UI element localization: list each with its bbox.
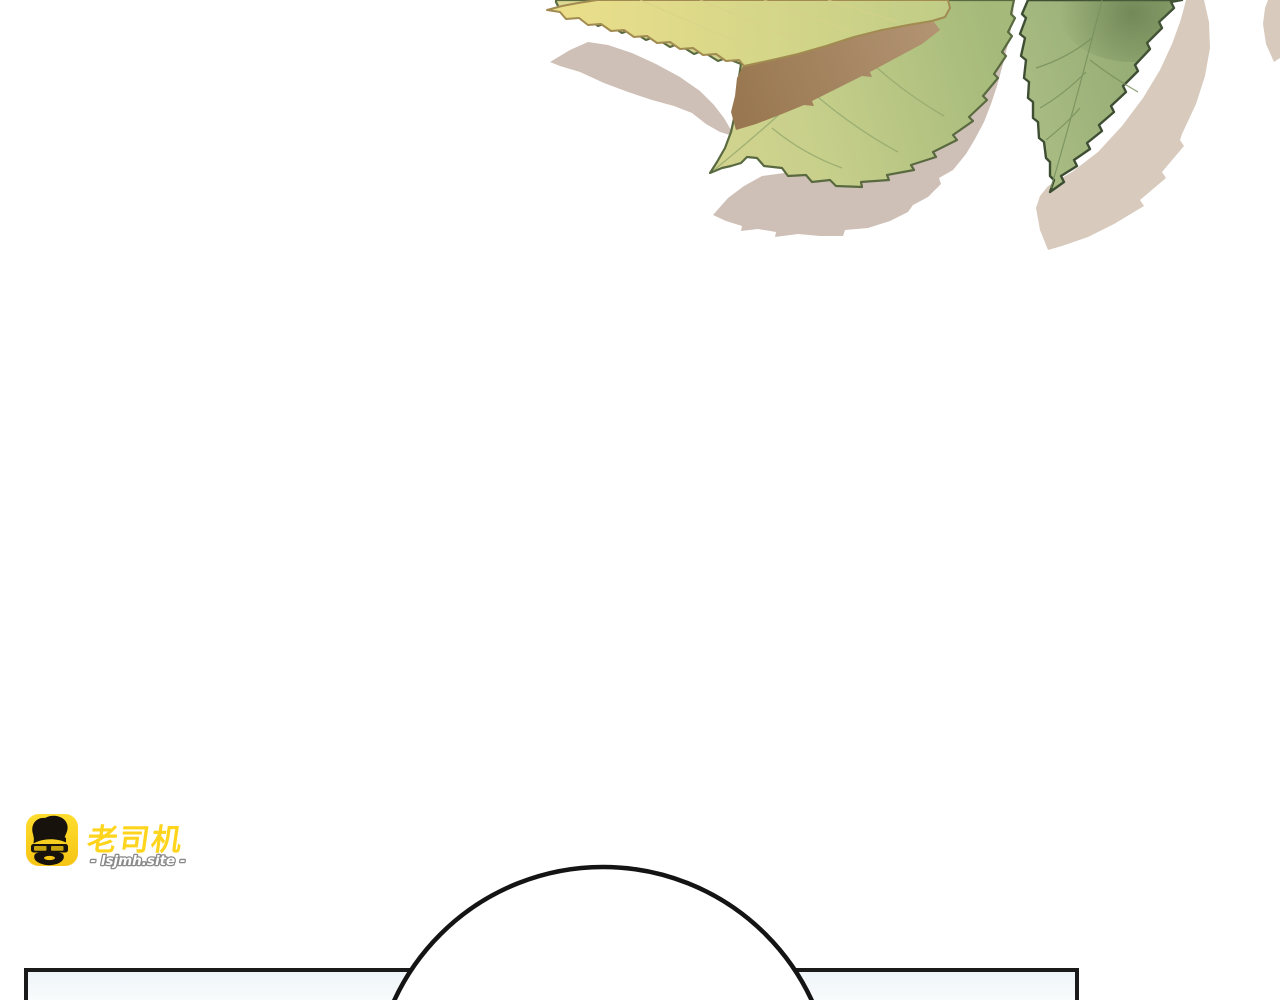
corner-shadow-sliver <box>1263 0 1280 62</box>
leaf-shadow-left-upper <box>550 42 733 136</box>
dome-outline <box>373 867 833 1000</box>
watermark: 老司机 - lsjmh.site - <box>26 814 186 869</box>
comic-page-image: 老司机 - lsjmh.site - <box>0 0 1280 1000</box>
leaves-illustration <box>547 0 1280 250</box>
next-panel <box>26 867 1077 1000</box>
watermark-icon <box>26 814 78 866</box>
site-text: - lsjmh.site - <box>91 853 186 869</box>
mouth <box>44 856 55 860</box>
comic-page: 老司机 - lsjmh.site - <box>0 0 1280 1000</box>
